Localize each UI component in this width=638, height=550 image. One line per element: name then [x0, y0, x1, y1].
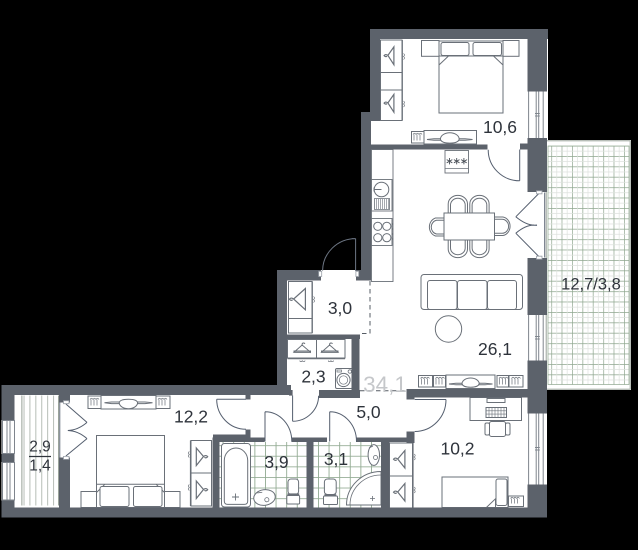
- svg-text:3,0: 3,0: [328, 298, 353, 318]
- svg-text:3,1: 3,1: [324, 449, 348, 469]
- svg-text:3,9: 3,9: [264, 452, 288, 472]
- svg-text:26,1: 26,1: [478, 339, 512, 359]
- svg-text:2,9: 2,9: [29, 439, 51, 456]
- svg-text:5,0: 5,0: [356, 402, 381, 422]
- svg-text:10,6: 10,6: [483, 117, 517, 137]
- svg-text:10,2: 10,2: [440, 439, 474, 459]
- svg-text:2,3: 2,3: [301, 367, 325, 387]
- svg-text:34,1: 34,1: [363, 372, 407, 397]
- svg-text:1,4: 1,4: [29, 458, 51, 475]
- svg-text:12,7/3,8: 12,7/3,8: [561, 276, 621, 294]
- svg-text:12,2: 12,2: [174, 407, 208, 427]
